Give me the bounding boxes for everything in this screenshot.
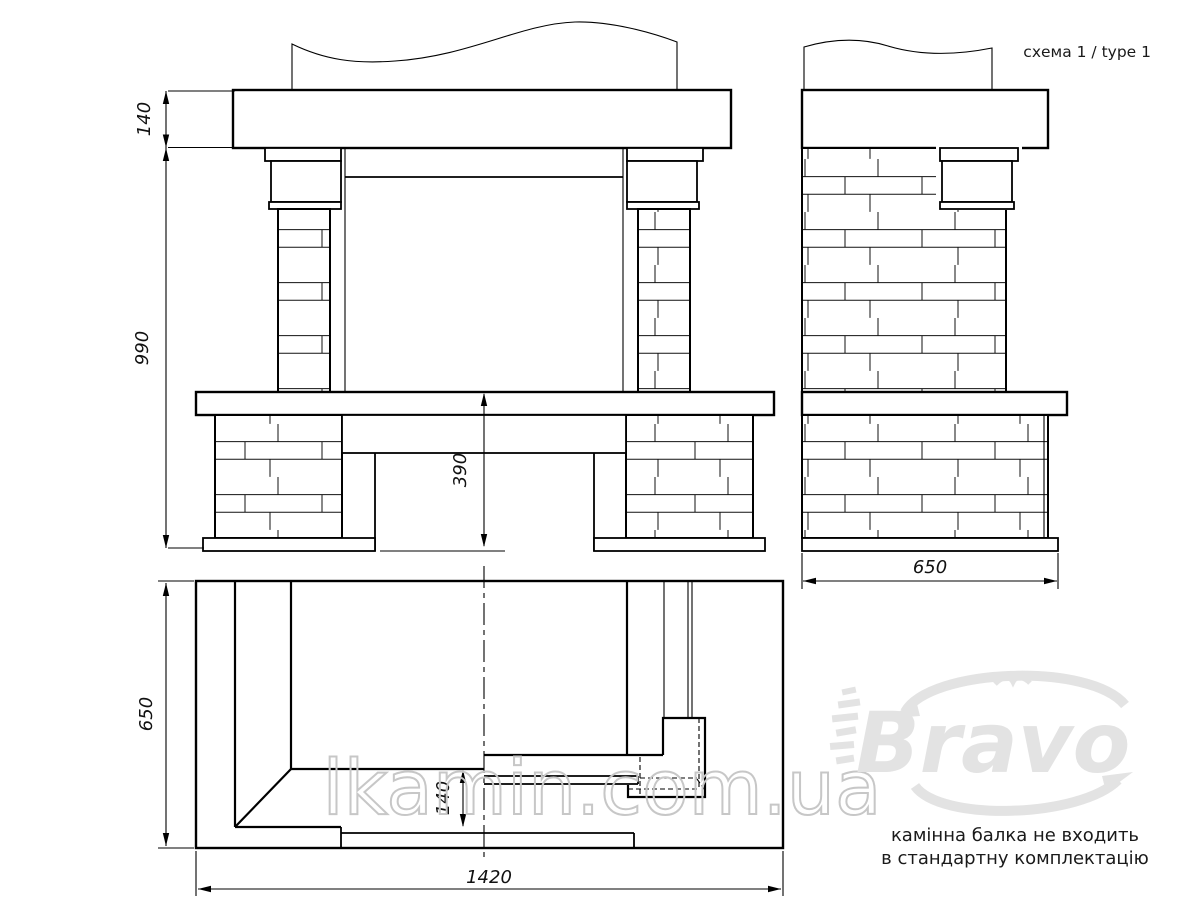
dim-plan-depth: 650 [136,581,194,848]
dim-plan-depth-text: 650 [136,697,157,731]
dim-plan-width: 1420 [196,851,783,896]
side-plinth [802,538,1058,551]
left-pedestal [215,415,342,538]
mantel-shelf-front [233,90,731,148]
hearth-shelf-side [802,392,1067,415]
dim-hearth-height-text: 390 [450,453,471,487]
technical-drawing-canvas: 140 990 390 [0,0,1201,901]
side-view: 650 [802,40,1067,589]
mantel-shelf-side [802,90,1048,148]
right-pedestal [626,415,753,538]
left-capital [265,148,341,209]
dim-plan-width-text: 1420 [466,867,512,888]
left-plinth [203,538,375,551]
right-plinth [594,538,765,551]
plan-view: 650 1420 140 [136,566,783,896]
note-line-1: камінна балка не входить [891,825,1139,846]
mantel-beam-front [292,22,677,90]
right-capital [627,148,703,209]
fireplace-drawing-page: 140 990 390 [0,0,1201,901]
mantel-beam-side [804,40,992,90]
front-view: 140 990 390 [132,22,774,551]
dim-side-depth-text: 650 [913,557,947,578]
dim-total-height: 990 [132,331,153,365]
dim-mantel-thickness: 140 [134,102,155,136]
watermark-site: lkamin.com.ua [322,743,881,832]
right-column-shaft [638,209,690,392]
left-column-shaft [278,209,330,392]
note-block: камінна балка не входить в стандартну ко… [881,825,1149,869]
dim-side-depth: 650 [802,553,1058,589]
note-line-2: в стандартну комплектацію [881,848,1149,869]
schema-type-label: схема 1 / type 1 [1023,43,1151,61]
watermark-brand-logo: Bravo [830,676,1133,811]
side-base-brick [802,415,1048,538]
watermark-brand: Bravo [856,694,1131,792]
side-capital [940,148,1018,209]
